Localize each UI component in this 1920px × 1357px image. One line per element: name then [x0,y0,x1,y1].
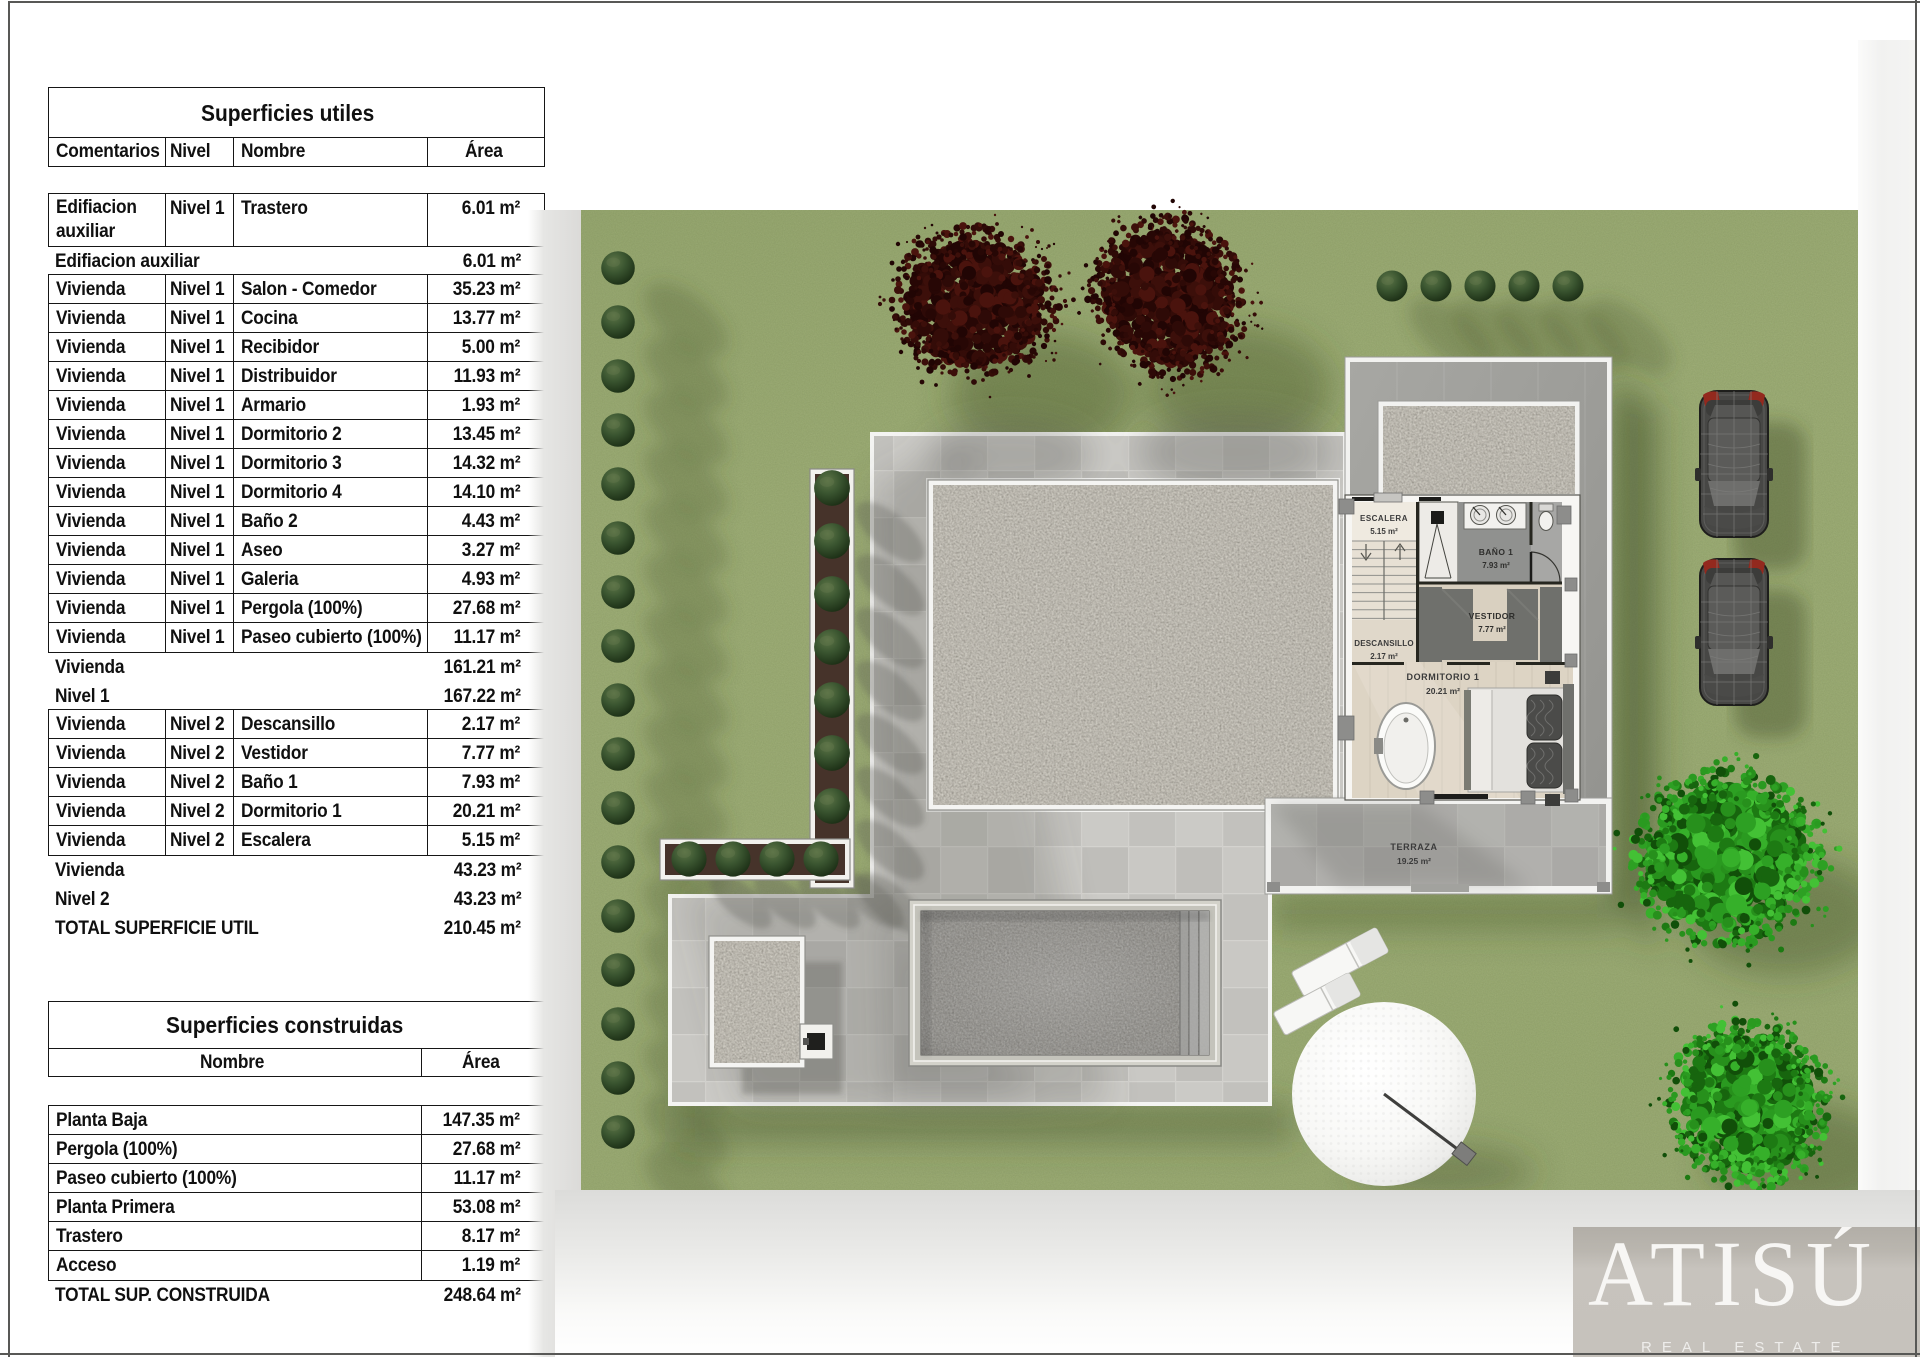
svg-text:DORMITORIO 1: DORMITORIO 1 [1406,672,1479,682]
svg-text:7.77 m²: 7.77 m² [1478,625,1506,634]
svg-text:ESCALERA: ESCALERA [1360,514,1408,523]
svg-text:DESCANSILLO: DESCANSILLO [1354,639,1414,648]
svg-text:7.93 m²: 7.93 m² [1482,561,1510,570]
svg-text:5.15 m²: 5.15 m² [1370,527,1398,536]
svg-text:20.21 m²: 20.21 m² [1426,686,1460,696]
svg-text:BAÑO 1: BAÑO 1 [1479,547,1514,557]
svg-text:2.17 m²: 2.17 m² [1370,652,1398,661]
svg-text:19.25 m²: 19.25 m² [1397,856,1431,866]
svg-text:TERRAZA: TERRAZA [1390,842,1437,852]
svg-text:VESTIDOR: VESTIDOR [1469,611,1516,621]
